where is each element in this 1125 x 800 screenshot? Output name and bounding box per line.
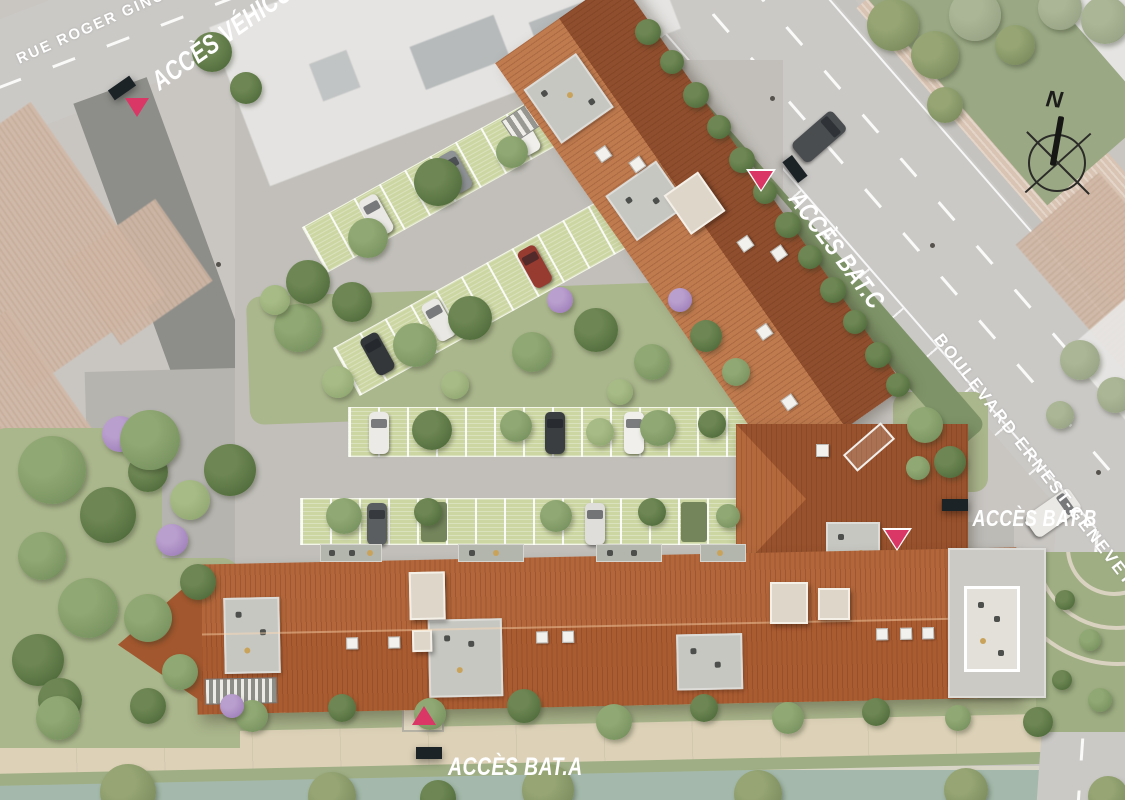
garden-curved-southeast [1036, 552, 1125, 732]
parked-car [369, 412, 389, 454]
skylight [770, 244, 788, 262]
building-a-roof-terrace-mid2 [676, 633, 743, 690]
access-bat-c-marker[interactable] [749, 171, 773, 190]
parking-row-lower-2 [300, 498, 762, 545]
skylight [876, 628, 888, 640]
parked-car [585, 503, 605, 545]
building-b-skylight-box [818, 588, 850, 620]
access-bat-a-marker[interactable] [412, 706, 436, 725]
skylight [755, 323, 773, 341]
rooftop-unit [409, 15, 510, 90]
parked-car [359, 331, 397, 377]
skylight [594, 145, 612, 163]
building-a-skylight-box [412, 630, 432, 652]
building-b-skylight-box [770, 582, 808, 624]
access-bat-b-marker[interactable] [885, 530, 909, 549]
access-vehicules-marker[interactable] [125, 98, 149, 117]
pedestrian [216, 262, 221, 267]
pedestrian [1096, 470, 1101, 475]
skylight [922, 627, 934, 639]
pedestrian [770, 96, 775, 101]
building-a-roof-terrace-mid1 [428, 618, 504, 698]
patio-terrace [700, 544, 746, 562]
building-a-terrace-east [948, 548, 1046, 698]
skylight [816, 444, 829, 457]
skylight [780, 393, 798, 411]
parked-car [358, 193, 396, 239]
access-bat-b-banner[interactable]: ACCÈS BAT.B [942, 499, 968, 511]
parked-car [516, 244, 554, 290]
patio-terrace [458, 544, 524, 562]
patio-terrace [596, 544, 662, 562]
hedge-stall [681, 502, 707, 542]
site-plan: RUE ROGER GINOUX BOULEVARD ERNEST-GENEVE… [0, 0, 1125, 800]
skylight [562, 631, 574, 643]
rooftop-unit [309, 50, 361, 102]
compass-rose: N [1028, 112, 1088, 196]
building-c-skylight-box [664, 172, 726, 235]
skylight [536, 631, 548, 643]
skylight [736, 235, 754, 253]
parked-car [545, 412, 565, 454]
skylight [346, 637, 358, 649]
parked-car [367, 503, 387, 545]
skylight [900, 628, 912, 640]
pergola [205, 677, 278, 705]
parked-car [420, 297, 458, 343]
building-a-roof [195, 547, 1020, 714]
compass-north-label: N [1045, 85, 1064, 114]
patio-frame [964, 586, 1020, 672]
skylight [388, 636, 400, 648]
parked-car [436, 149, 474, 195]
building-a-roof-terrace-west [223, 597, 281, 674]
hedge-stall [421, 502, 447, 542]
access-bat-a-banner[interactable]: ACCÈS BAT.A [416, 747, 442, 759]
pedestrian [930, 243, 935, 248]
building-a-skylight-box [409, 571, 446, 620]
parked-car [624, 412, 644, 454]
patio-terrace [320, 544, 382, 562]
parking-row-lower-1 [348, 407, 760, 457]
